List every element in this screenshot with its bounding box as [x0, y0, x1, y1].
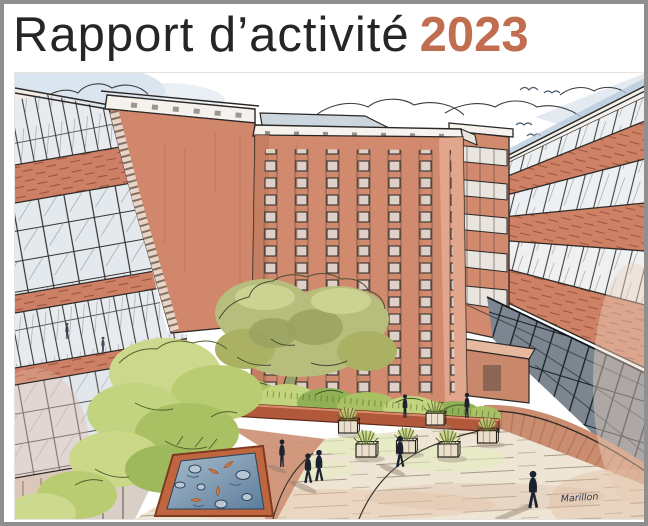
page-title: Rapport d’activité2023 — [13, 6, 529, 64]
title-year: 2023 — [420, 8, 529, 62]
koi-pond — [155, 446, 273, 516]
report-cover-page: Rapport d’activité2023 — [0, 0, 648, 526]
title-text: Rapport d’activité — [13, 8, 410, 62]
cover-illustration: Marillon — [14, 72, 646, 520]
entrance-porch — [461, 339, 535, 403]
courtyard-illustration: Marillon — [15, 73, 645, 519]
